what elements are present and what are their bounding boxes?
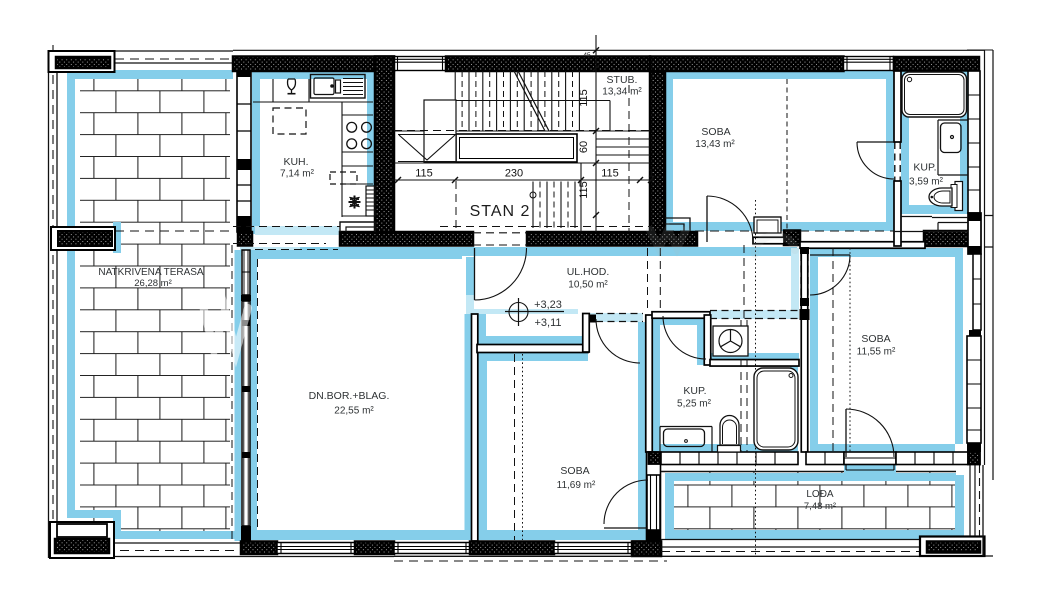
svg-text:10,50 m²: 10,50 m² (568, 280, 608, 291)
svg-text:11,69 m²: 11,69 m² (557, 480, 596, 491)
svg-text:13,34 m²: 13,34 m² (602, 87, 642, 98)
svg-text:+3,23: +3,23 (534, 299, 562, 311)
svg-text:3,59 m²: 3,59 m² (909, 177, 944, 188)
svg-text:5,25 m²: 5,25 m² (677, 399, 712, 410)
svg-text:SOBA: SOBA (560, 465, 589, 477)
svg-text:KUP.: KUP. (913, 162, 936, 174)
svg-text:NATKRIVENA TERASA: NATKRIVENA TERASA (98, 267, 204, 278)
svg-text:KUH.: KUH. (283, 156, 308, 168)
svg-text:1: 1 (648, 168, 654, 180)
svg-text:115: 115 (601, 168, 619, 180)
svg-text:26,28 m²: 26,28 m² (134, 278, 172, 289)
svg-text:7,48 m²: 7,48 m² (804, 501, 836, 512)
svg-text:13,43 m²: 13,43 m² (695, 139, 735, 150)
svg-text:SOBA: SOBA (861, 333, 890, 345)
svg-text:60: 60 (578, 141, 590, 153)
svg-text:KUP.: KUP. (683, 385, 706, 397)
svg-text:STAN 2: STAN 2 (470, 203, 531, 220)
svg-text:115: 115 (578, 89, 590, 107)
svg-text:115: 115 (415, 168, 433, 180)
svg-text:22,55 m²: 22,55 m² (334, 406, 374, 417)
svg-text:LOĐA: LOĐA (806, 489, 834, 500)
svg-text:UL.HOD.: UL.HOD. (567, 266, 610, 278)
svg-text:45: 45 (583, 52, 591, 59)
svg-text:7,14 m²: 7,14 m² (280, 169, 315, 180)
svg-text:115: 115 (578, 181, 590, 199)
svg-text:DN.BOR.+BLAG.: DN.BOR.+BLAG. (309, 390, 390, 402)
svg-text:SOBA: SOBA (701, 126, 730, 138)
svg-text:STUB.: STUB. (607, 74, 638, 86)
svg-text:230: 230 (505, 168, 523, 180)
svg-text:+3,11: +3,11 (534, 317, 561, 329)
svg-text:11,55 m²: 11,55 m² (857, 347, 896, 358)
